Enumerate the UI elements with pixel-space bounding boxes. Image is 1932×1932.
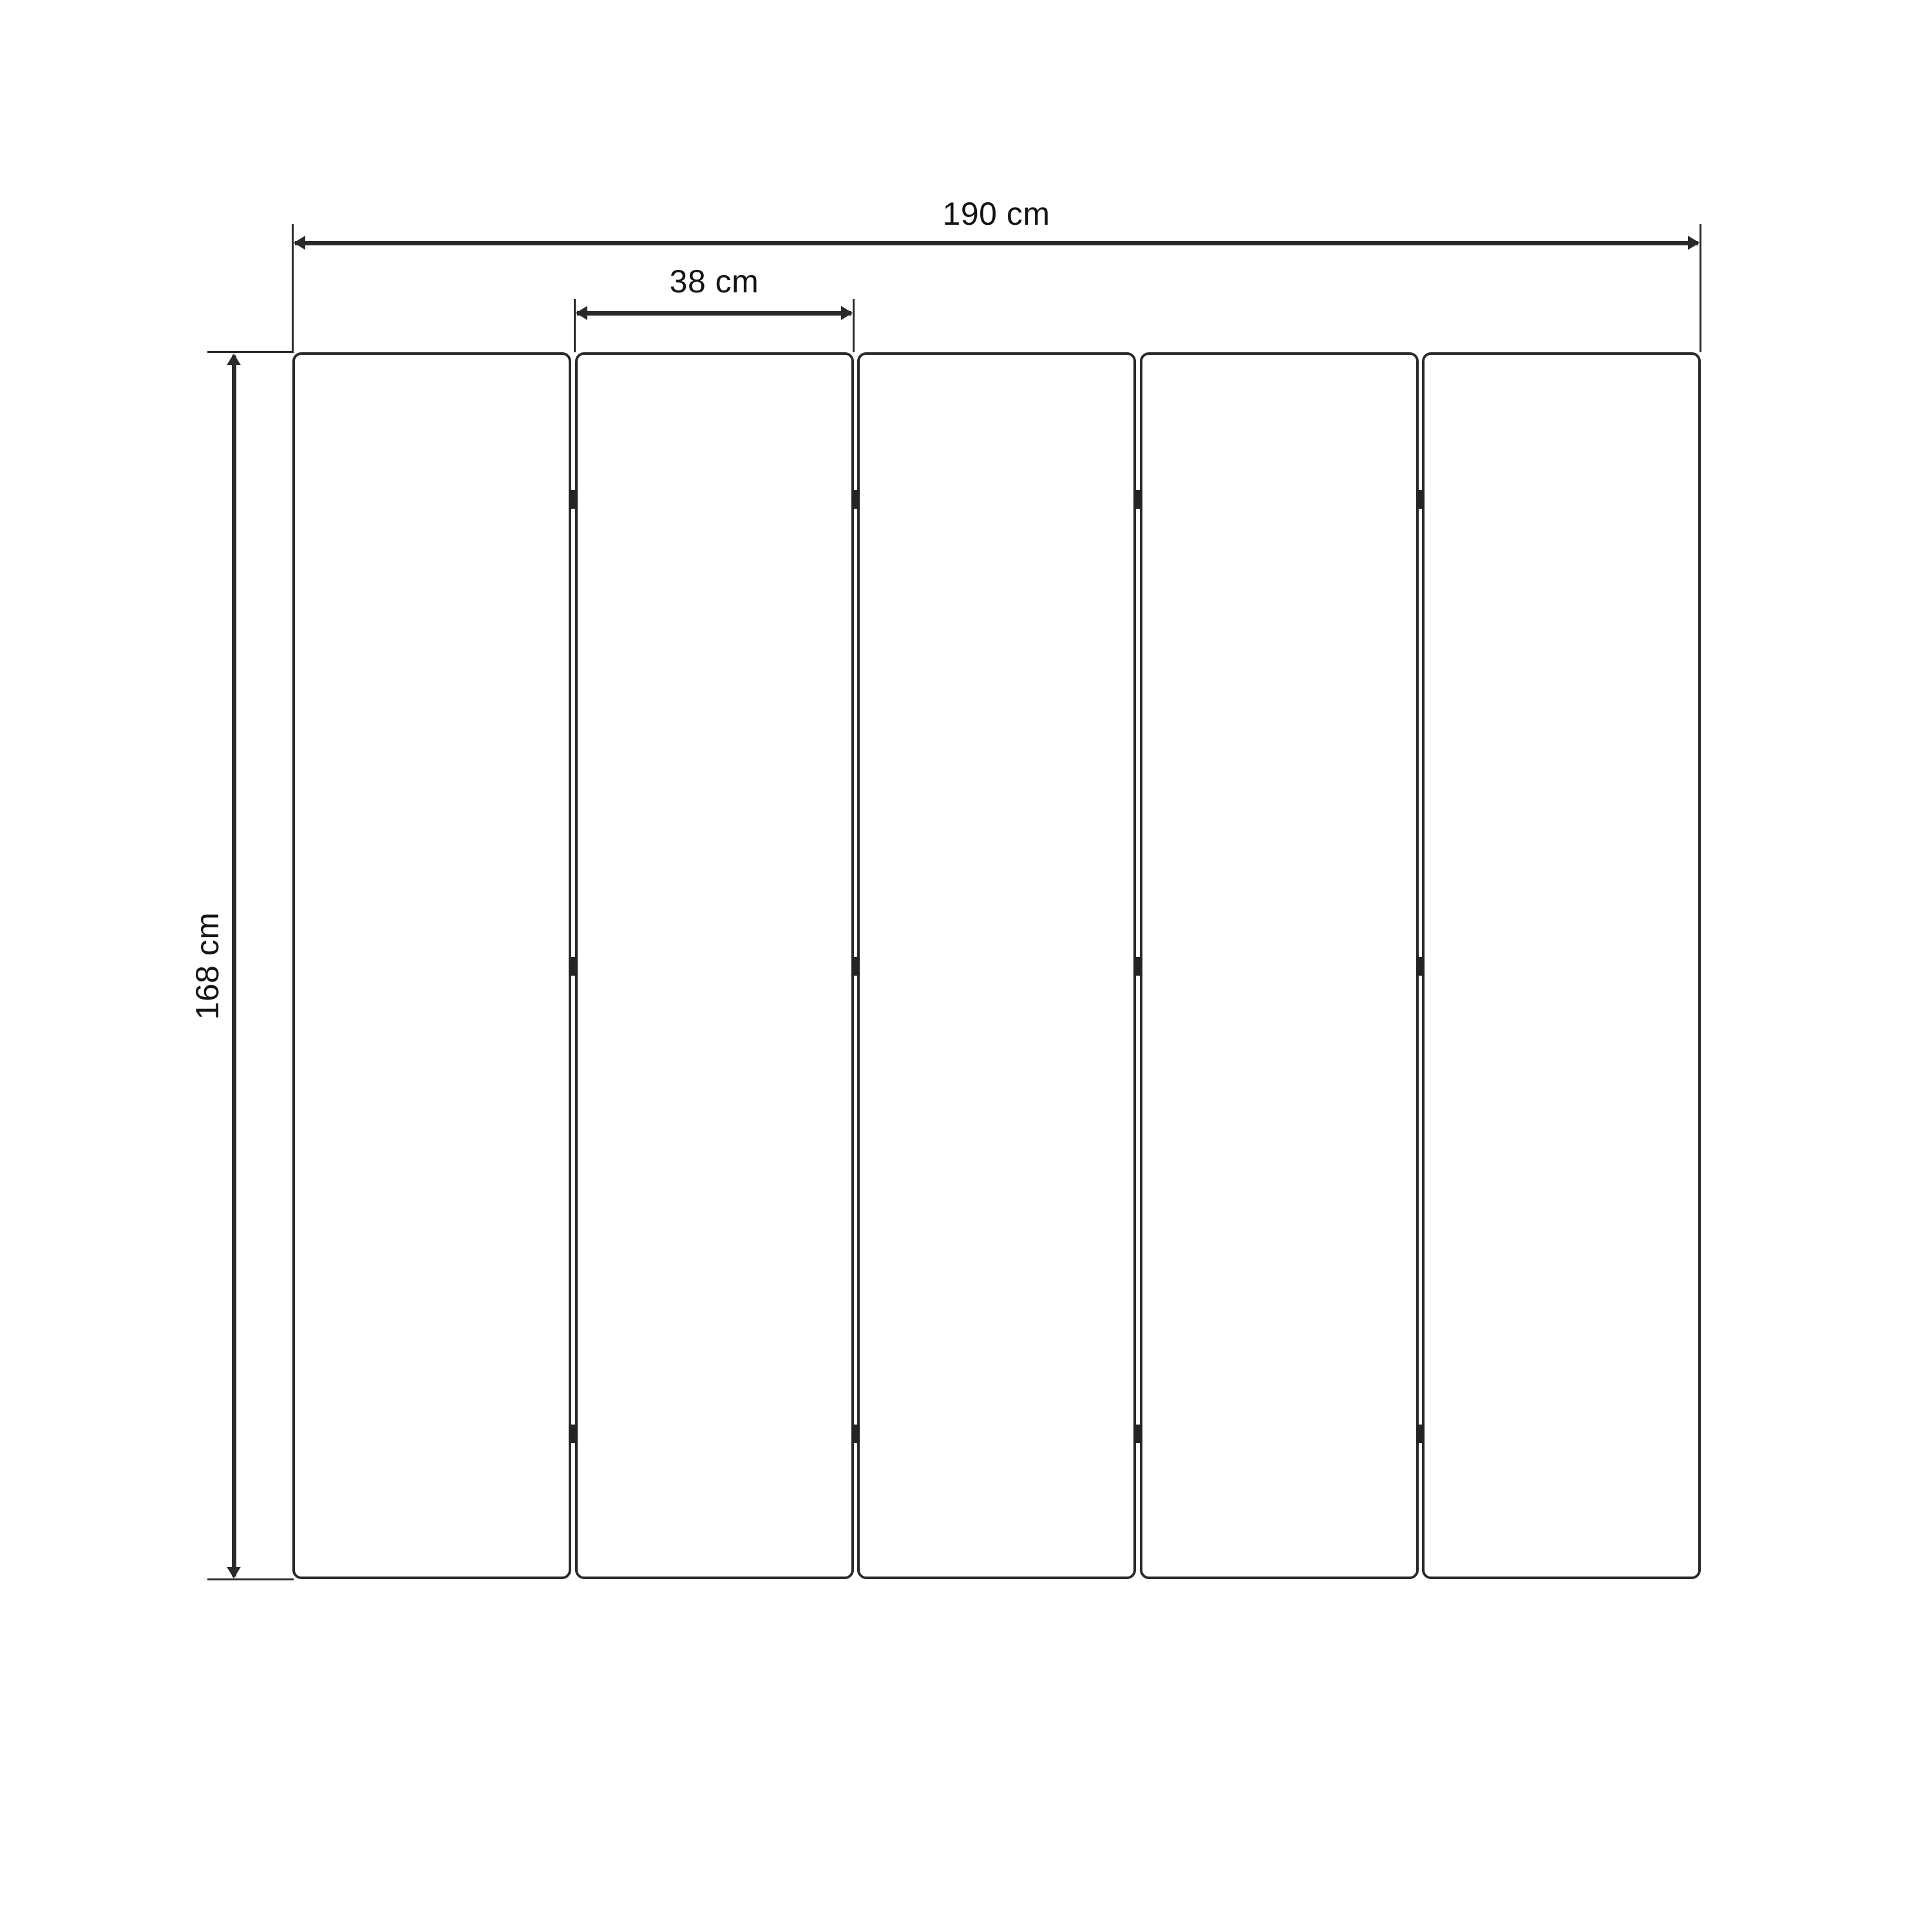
- hinge-mark: [851, 490, 860, 509]
- hinge-mark: [569, 1425, 577, 1443]
- hinge-mark: [1133, 957, 1142, 976]
- panel-width-extension-line-right: [853, 299, 855, 352]
- height-dimension-line: [232, 355, 236, 1577]
- width-arrowhead-right-icon: [1688, 236, 1700, 250]
- hinge-mark: [1133, 490, 1142, 509]
- height-arrowhead-top-icon: [227, 354, 241, 365]
- height-dimension-label: 168 cm: [191, 913, 223, 1020]
- panel-width-arrowhead-right-icon: [841, 306, 853, 320]
- panel-width-arrowhead-left-icon: [576, 306, 587, 320]
- height-arrowhead-bottom-icon: [227, 1567, 241, 1578]
- width-dimension-line: [295, 241, 1698, 245]
- width-dimension-label: 190 cm: [943, 198, 1050, 230]
- hinge-mark: [851, 957, 860, 976]
- panel: [857, 352, 1136, 1579]
- hinge-mark: [569, 957, 577, 976]
- screen-diagram: 190 cm 38 cm 168 cm: [0, 0, 1932, 1932]
- hinge-mark: [569, 490, 577, 509]
- panel: [1422, 352, 1701, 1579]
- hinge-mark: [851, 1425, 860, 1443]
- panel-width-dimension-label: 38 cm: [670, 265, 759, 298]
- hinge-mark: [1416, 1425, 1425, 1443]
- panel: [1140, 352, 1419, 1579]
- hinge-mark: [1133, 1425, 1142, 1443]
- hinge-mark: [1416, 957, 1425, 976]
- panel: [292, 352, 571, 1579]
- panel: [575, 352, 854, 1579]
- width-arrowhead-left-icon: [294, 236, 305, 250]
- panel-width-dimension-line: [577, 311, 851, 316]
- height-extension-line-top: [207, 351, 294, 353]
- height-extension-line-bottom: [207, 1578, 294, 1580]
- hinge-mark: [1416, 490, 1425, 509]
